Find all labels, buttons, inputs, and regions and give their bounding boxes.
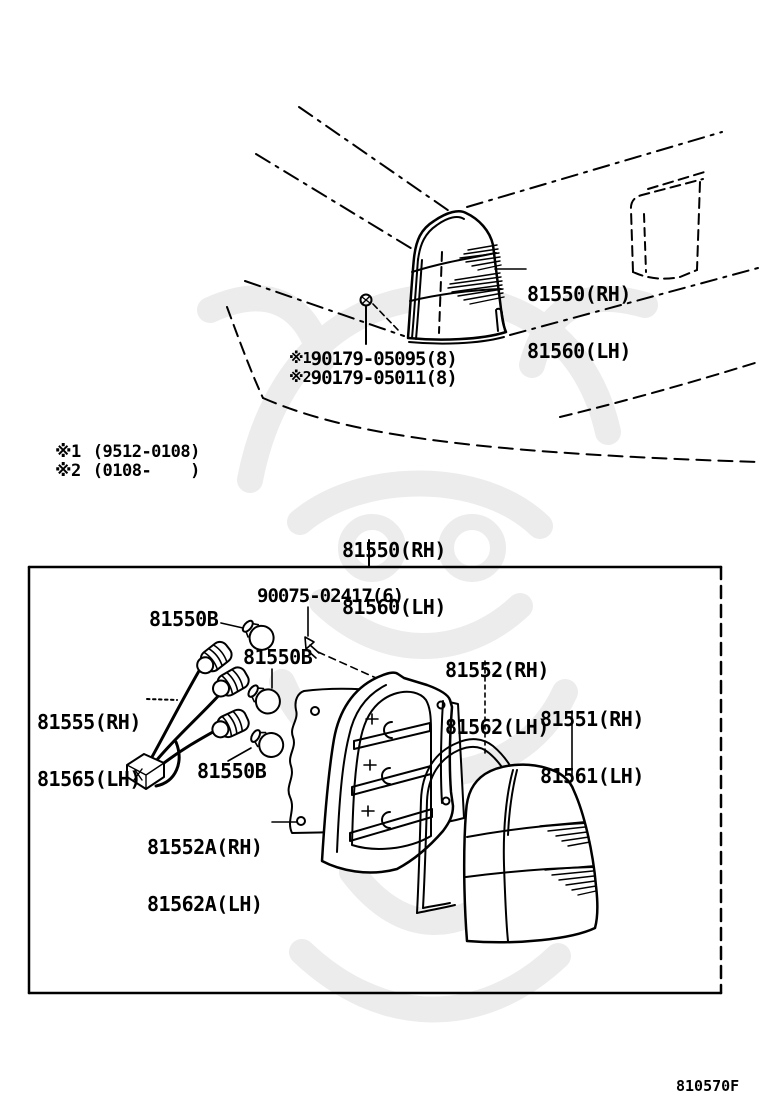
assembly-label: 81550(RH) 81560(LH) bbox=[342, 503, 446, 655]
bulb-socket-3 bbox=[209, 707, 252, 743]
packing-label: 81552A(RH) 81562A(LH) bbox=[147, 800, 262, 952]
socket-wire-label-rh: 81555(RH) bbox=[37, 713, 141, 732]
note-ref-2: ※2 bbox=[55, 462, 81, 481]
lens-label-rh: 81551(RH) bbox=[540, 710, 644, 729]
bulb-label-1: 81550B bbox=[149, 610, 218, 629]
lens-label-lh: 81561(LH) bbox=[540, 767, 644, 786]
screw-part-label-2: ※2 90179-05011(8) bbox=[289, 368, 457, 388]
packing-label-rh: 81552A(RH) bbox=[147, 838, 262, 857]
leader-socket-wire-label bbox=[147, 699, 177, 700]
note-ref-1: ※1 bbox=[55, 443, 81, 462]
reference-mark-2: ※2 bbox=[289, 368, 311, 388]
socket-wire-label-lh: 81565(LH) bbox=[37, 770, 141, 789]
figure-code: 810570F bbox=[676, 1077, 739, 1096]
overview-lamp-label: 81550(RH) 81560(LH) bbox=[527, 247, 631, 399]
leader-bulb-1 bbox=[221, 623, 243, 628]
overview-lamp-label-rh: 81550(RH) bbox=[527, 285, 631, 304]
body-label-lh: 81562(LH) bbox=[445, 718, 549, 737]
box-screw-label: 90075-02417(6) bbox=[257, 587, 403, 606]
packing-label-lh: 81562A(LH) bbox=[147, 895, 262, 914]
reference-mark-1: ※1 bbox=[289, 349, 311, 369]
production-note-1: ※1 (9512-0108) bbox=[55, 443, 200, 462]
assembly-label-rh: 81550(RH) bbox=[342, 541, 446, 560]
socket-wire-label: 81555(RH) 81565(LH) bbox=[37, 675, 141, 827]
lens-label: 81551(RH) 81561(LH) bbox=[540, 672, 644, 824]
body-label-rh: 81552(RH) bbox=[445, 661, 549, 680]
screw-part-number-2: 90179-05011(8) bbox=[311, 369, 457, 388]
overview-lamp-label-lh: 81560(LH) bbox=[527, 342, 631, 361]
bulb-label-3: 81550B bbox=[197, 762, 266, 781]
body-label: 81552(RH) 81562(LH) bbox=[445, 623, 549, 775]
note-range-2: (0108- ) bbox=[93, 462, 200, 481]
screw-part-label-1: ※1 90179-05095(8) bbox=[289, 349, 457, 369]
parts-diagram-page: 81550(RH) 81560(LH) ※1 90179-05095(8) ※2… bbox=[0, 0, 760, 1112]
tail-lamp-overview-drawing bbox=[408, 211, 526, 343]
note-range-1: (9512-0108) bbox=[93, 443, 200, 462]
bulb-3 bbox=[247, 724, 288, 762]
production-note-2: ※2 (0108- ) bbox=[55, 462, 200, 481]
bulb-label-2: 81550B bbox=[243, 648, 312, 667]
